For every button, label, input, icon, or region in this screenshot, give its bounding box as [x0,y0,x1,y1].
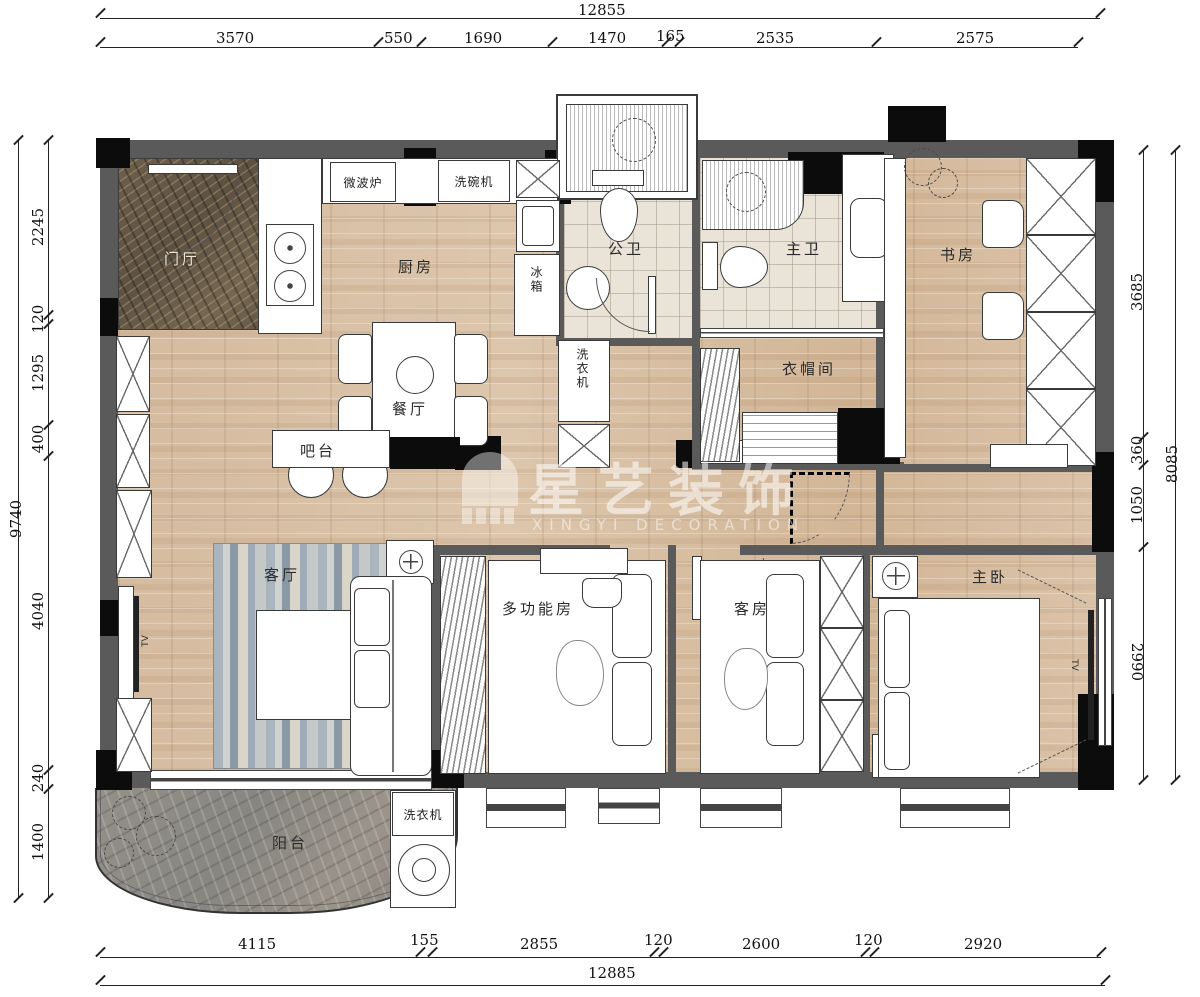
dim-top-1: 550 [384,29,413,47]
dim-left-4: 4040 [29,581,47,641]
watermark-logo-base [462,508,518,524]
chair [454,334,488,384]
dishwasher-box: 洗碗机 [438,160,510,202]
room-label-master: 主卧 [972,566,1008,587]
dim-top-3: 1470 [588,29,626,47]
microwave-box: 微波炉 [330,162,396,202]
chair [982,200,1024,248]
watermark-cn: 星艺装饰 [528,446,808,527]
wardrobe-multi [440,556,486,774]
dining-feature-wall [390,437,460,469]
dim-line [100,47,1078,48]
sofa-cushion [354,588,390,646]
storage-cabinet [116,698,152,772]
wall-bath-divider [692,158,700,470]
coffee-table [256,610,360,720]
sofa-cushion [354,650,390,708]
room-label-dining: 餐厅 [392,398,428,419]
bay-window [598,788,660,824]
kitchen-tall-cabinet [516,160,560,198]
wardrobe-guest-cell [820,556,864,628]
dim-bottom-total: 12885 [588,964,636,982]
dim-top-total: 12855 [578,1,626,19]
dim-right-0: 3685 [1128,262,1146,322]
chair [982,292,1024,340]
floor-plan: 洗衣机 阳台 微波炉 洗碗机 [0,0,1200,997]
dim-line [100,957,1101,958]
master-bath-glass [700,328,884,338]
room-label-living: 客厅 [264,564,300,585]
dim-line [48,140,49,898]
kitchen-sink-bowl [522,206,554,246]
room-label-public-bath: 公卫 [608,238,644,259]
bookcase-cell [1026,235,1096,312]
bay-window [700,788,782,828]
pillow [766,574,804,658]
room-label-master-bath: 主卫 [786,238,822,259]
burner-icon [274,232,306,264]
dim-bottom-4: 2600 [742,935,780,953]
tv-living-label: TV [141,635,151,647]
room-label-entry: 门厅 [164,248,200,269]
toilet-tank [592,170,644,186]
dim-right-2: 1050 [1128,475,1146,535]
toilet-tank [702,242,718,290]
dim-bottom-0: 4115 [238,935,276,953]
dim-right-1: 360 [1128,420,1146,480]
desk-multi [540,548,628,574]
pillow [884,610,910,688]
dim-left-2: 1295 [29,343,47,403]
watermark-logo [462,452,518,506]
lamp-icon [882,562,910,590]
column [1092,452,1114,552]
wardrobe-guest-cell [820,628,864,700]
tv-master-label: TV [1069,659,1079,671]
dim-top-6: 2575 [956,29,994,47]
room-label-cloakroom: 衣帽间 [782,358,836,379]
dishwasher-label: 洗碗机 [454,173,493,190]
study-desk [884,158,906,458]
dim-top-5: 2535 [756,29,794,47]
dim-top-0: 3570 [216,29,254,47]
pillow [766,662,804,746]
dim-top-2: 1690 [464,29,502,47]
column [100,600,118,636]
dim-left-0: 2245 [29,197,47,257]
washer-balcony-box: 洗衣机 [392,792,454,836]
dim-bottom-1: 155 [410,931,439,949]
dim-left-total: 9740 [7,489,25,549]
dresser [990,444,1068,468]
dim-line [100,985,1105,986]
column [100,298,118,336]
storage-cabinet [116,414,150,488]
sofa-divider [392,580,394,772]
plant-icon [726,172,766,212]
wall-hall-right [876,462,884,555]
dim-left-3: 400 [29,409,47,469]
plant-icon [928,168,958,198]
washer-hall-label: 洗衣机 [574,348,591,390]
room-label-kitchen: 厨房 [398,256,434,277]
storage-cabinet [116,336,150,412]
bookcase-cell [1026,158,1096,235]
dim-left-5: 240 [29,748,47,808]
plant-icon [612,118,656,162]
wardrobe-guest-cell [820,700,864,772]
column [96,138,130,168]
vanity-sink [850,198,888,258]
chair [338,334,372,384]
plant-icon [104,838,134,868]
wall-multi-guest [668,545,676,772]
master-window [1098,598,1112,746]
bay-window [900,788,1010,828]
tv-cabinet [118,586,134,700]
plant-icon [136,816,176,856]
dim-bottom-3: 120 [644,931,673,949]
room-label-guest: 客房 [734,598,770,619]
bookcase-cell [1026,312,1096,389]
dim-bottom-2: 2855 [520,935,558,953]
washer-balcony-label: 洗衣机 [403,806,442,823]
chair [582,578,622,608]
storage-cabinet [116,490,152,578]
dim-right-total: 8085 [1163,434,1181,494]
microwave-label: 微波炉 [343,174,382,191]
pillow [612,662,652,746]
watermark-en: XINGYI DECORATION [532,516,805,534]
room-label-multi: 多功能房 [502,598,574,619]
column [888,106,946,142]
washer-drum-inner [412,858,436,882]
dim-bottom-5: 120 [854,931,883,949]
bay-window [486,788,566,828]
wall-bedrooms-top-b [740,545,1114,555]
room-label-balcony: 阳台 [272,832,308,853]
plate-icon [396,356,434,394]
dim-bottom-6: 2920 [964,935,1002,953]
tv-panel [134,596,139,692]
dim-left-1: 120 [29,289,47,349]
pillow [884,692,910,770]
dim-left-6: 1400 [29,812,47,872]
dim-top-4: 165 [656,27,685,45]
cloak-hanger-rack [700,348,740,462]
room-label-bar: 吧台 [300,440,336,461]
blanket [556,640,604,706]
burner-icon [274,270,306,302]
room-label-study: 书房 [940,244,976,265]
ceiling-fixture-icon [399,550,423,574]
dim-right-3: 2990 [1128,632,1146,692]
tv-panel [1088,610,1094,740]
fridge-label: 冰箱 [528,266,545,294]
